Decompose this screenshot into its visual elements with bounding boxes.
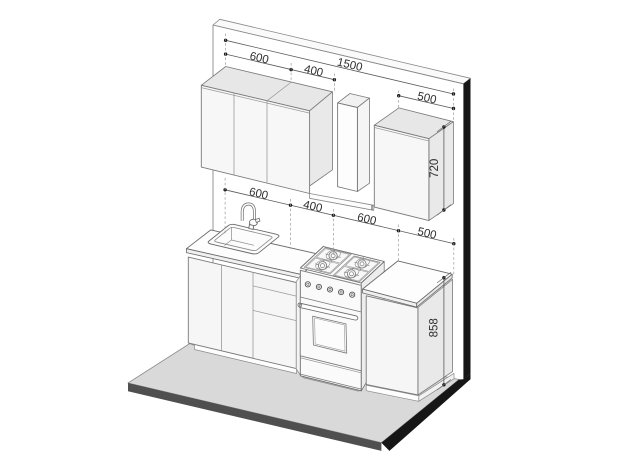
svg-text:720: 720 (429, 159, 441, 178)
svg-text:858: 858 (429, 318, 441, 337)
